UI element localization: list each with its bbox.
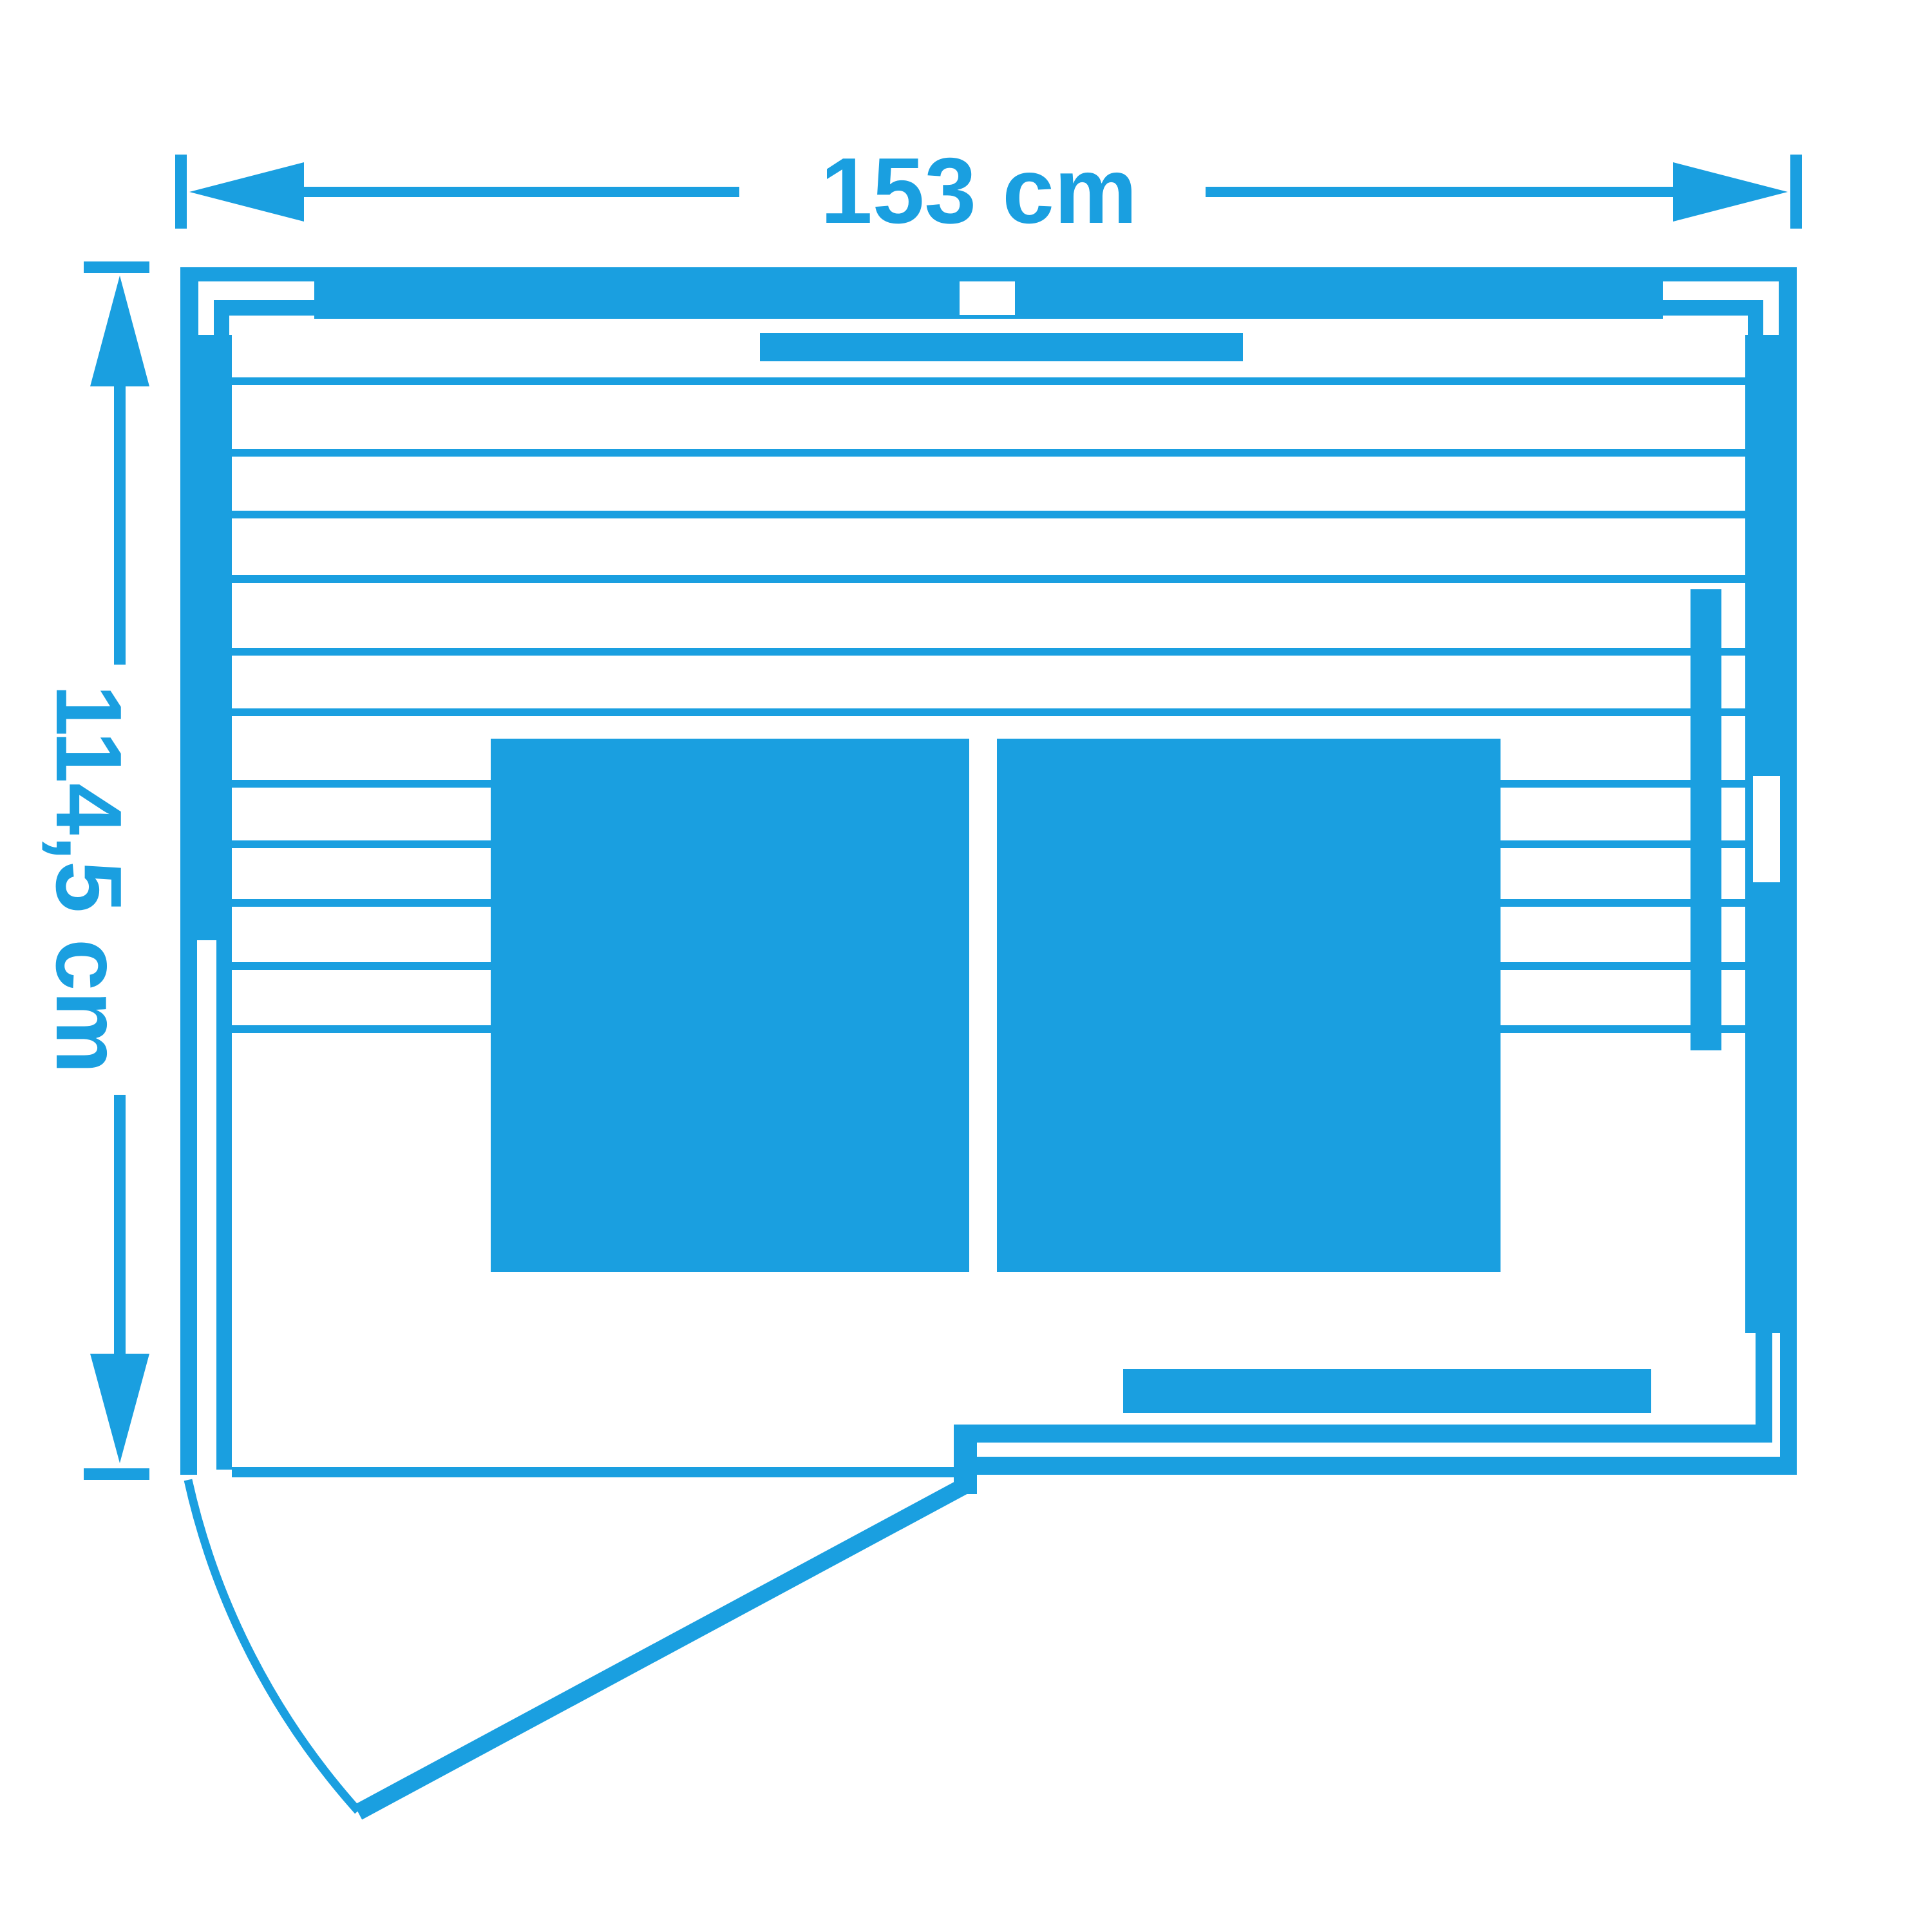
- door-leaf: [358, 1485, 966, 1812]
- bottom-right-corner-outer: [1780, 1333, 1797, 1475]
- bench-slat-left: [232, 840, 491, 848]
- backrest-bar: [1690, 589, 1721, 1050]
- ceiling-panel-bar: [760, 333, 1243, 361]
- height-dim-tick-top: [84, 261, 149, 273]
- bench-slat-left: [232, 899, 491, 907]
- right-wall-handle-notch: [1753, 776, 1780, 882]
- sauna-floor-plan-diagram: 153 cm 114,5 cm: [0, 0, 1932, 1932]
- left-wall: [180, 267, 232, 940]
- width-dim-shaft-left: [295, 187, 739, 197]
- bottom-wall-outer-line: [966, 1457, 1797, 1475]
- inner-lining-top-left-v: [214, 300, 229, 335]
- width-dim-arrow-right-icon: [1673, 162, 1788, 222]
- door-swing-arc: [188, 1480, 358, 1811]
- inner-lining-top-right-v: [1748, 300, 1763, 335]
- bench-slat: [232, 648, 1745, 656]
- width-dim-tick-right: [1790, 155, 1802, 229]
- bench-slat-left: [232, 780, 491, 788]
- door-frame-left-inner: [216, 940, 232, 1470]
- bottom-right-corner-inner: [1756, 1333, 1772, 1443]
- bench-slat: [232, 449, 1745, 457]
- bench-slat-left: [232, 1025, 491, 1033]
- heater-bar: [1123, 1369, 1651, 1413]
- height-dim-shaft-bottom: [114, 1095, 126, 1365]
- height-dimension-label: 114,5 cm: [37, 685, 141, 1074]
- door-frame-left-outer: [180, 940, 197, 1475]
- height-dim-arrow-down-icon: [90, 1354, 149, 1463]
- top-wall-vent-notch: [960, 281, 1015, 315]
- bench-slat-left: [232, 962, 491, 970]
- width-dim-arrow-left-icon: [189, 162, 304, 222]
- width-dimension-label: 153 cm: [820, 138, 1137, 243]
- height-dimension: 114,5 cm: [37, 261, 149, 1480]
- height-dim-tick-bottom: [84, 1468, 149, 1480]
- bench-slat: [232, 377, 1745, 385]
- interior: [232, 333, 1745, 1413]
- bench-slat: [232, 708, 1745, 716]
- seat-left: [491, 739, 969, 1272]
- door: [188, 1480, 966, 1812]
- seat-right: [997, 739, 1501, 1272]
- floor-plan-canvas: 153 cm 114,5 cm: [0, 0, 1932, 1932]
- height-dim-arrow-up-icon: [90, 276, 149, 386]
- width-dim-tick-left: [175, 155, 187, 229]
- height-dim-shaft-top: [114, 375, 126, 665]
- door-threshold-line: [232, 1467, 954, 1477]
- cabin-walls: [180, 267, 1797, 1333]
- bottom-wall-inner-line: [976, 1425, 1772, 1443]
- bench-slat: [232, 511, 1745, 518]
- width-dimension: 153 cm: [175, 138, 1802, 243]
- bench-slat: [232, 575, 1745, 583]
- width-dim-shaft-right: [1206, 187, 1676, 197]
